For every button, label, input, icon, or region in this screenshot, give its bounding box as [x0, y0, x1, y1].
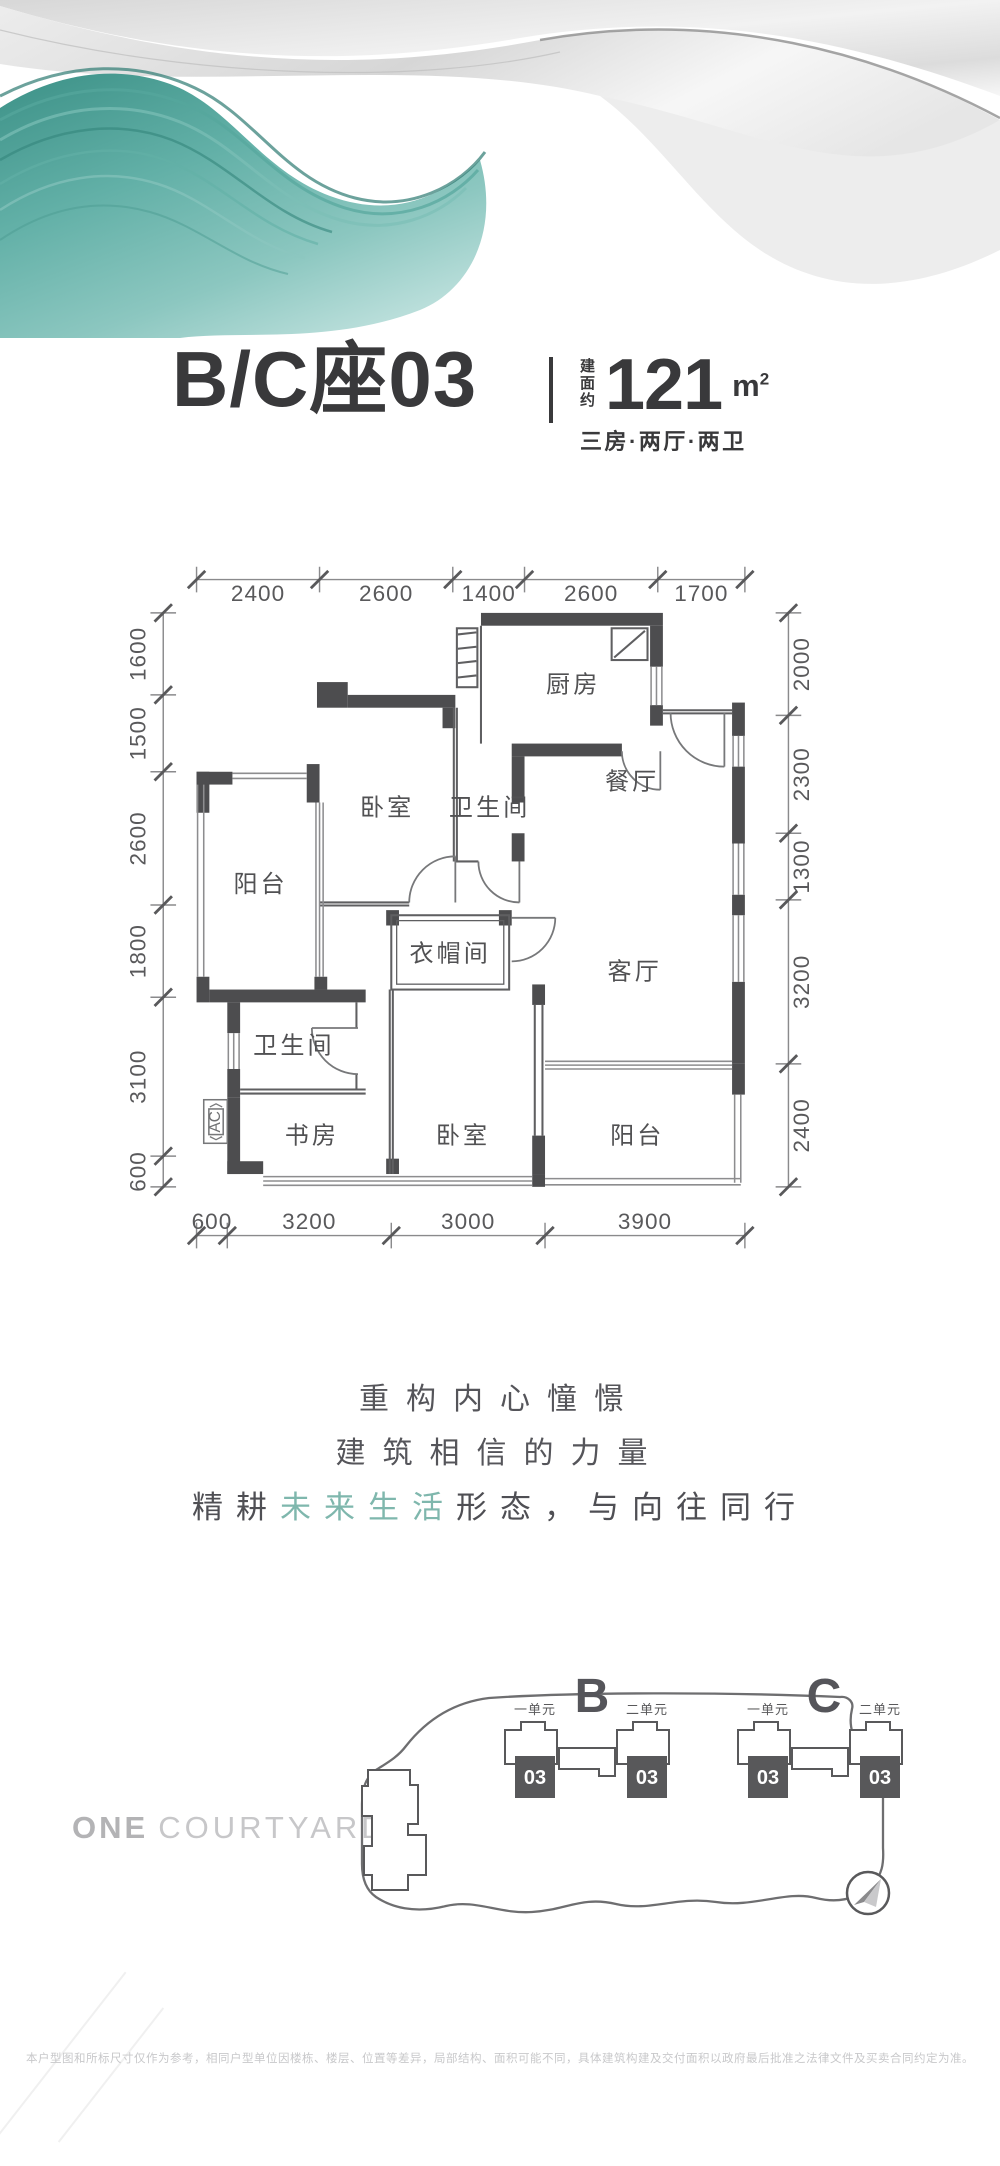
dim-right-4: 2400	[789, 1098, 814, 1152]
dim-right-0: 2000	[789, 637, 814, 691]
unit-no-b1: 03	[524, 1767, 546, 1789]
slogan-line-3: 精耕未来生活形态，与向往同行	[0, 1482, 1000, 1527]
disclaimer-text: 本户型图和所标尺寸仅作为参考，相同户型单位因楼栋、楼层、位置等差异，局部结构、面…	[0, 2050, 1000, 2066]
unit-no-c2: 03	[869, 1767, 891, 1789]
dim-right-3: 3200	[789, 955, 814, 1009]
watermark-line	[58, 2007, 164, 2142]
teal-paint-wave	[0, 69, 486, 338]
floorplan-windows	[198, 667, 744, 1186]
area-block: 建面约 121 m2	[580, 352, 769, 418]
area-unit: m2	[732, 368, 769, 404]
dim-top-2: 1400	[462, 581, 516, 606]
ac-unit: AC	[204, 1085, 228, 1143]
unit-label-b2: 二单元	[626, 1702, 668, 1717]
dim-bottom-2: 3000	[441, 1209, 495, 1234]
siteplan-drawing: B C 03 03 一单元 二单元 03 03 一单元 二单元	[296, 1676, 952, 1932]
area-prefix: 建面约	[580, 358, 597, 409]
dim-top-3: 2600	[564, 581, 618, 606]
dim-bottom-0: 600	[192, 1209, 233, 1234]
slogan-3-highlight: 未来生活	[280, 1490, 456, 1525]
room-study: 书房	[285, 1122, 339, 1149]
dim-bottom-3: 3900	[618, 1209, 672, 1234]
room-balcony-left: 阳台	[233, 871, 287, 898]
unit-no-b2: 03	[636, 1767, 658, 1789]
dim-left-0: 1600	[125, 627, 150, 681]
room-labels: 厨房 餐厅 卧室 卫生间 阳台 卫生间 衣帽间 客厅 书房 卧室 阳台	[233, 671, 664, 1149]
page-title: B/C座03	[172, 340, 477, 418]
unit-label-c1: 一单元	[747, 1702, 789, 1717]
unit-label-b1: 一单元	[514, 1702, 556, 1717]
area-value: 121	[605, 352, 722, 418]
slogan-3-post: 形态，与向往同行	[456, 1490, 808, 1525]
dim-right-2: 1300	[789, 839, 814, 893]
ac-label: AC	[207, 1111, 224, 1132]
room-cloakroom: 衣帽间	[409, 940, 490, 967]
room-living: 客厅	[608, 958, 662, 985]
room-balcony-bottom: 阳台	[610, 1122, 664, 1149]
floorplan-drawing: AC 厨房 餐厅 卧室 卫生间 阳台 卫生间 衣帽间 客厅 书房 卧室 阳台 2…	[112, 536, 832, 1274]
unit-label-c2: 二单元	[859, 1702, 901, 1717]
room-kitchen: 厨房	[546, 671, 600, 698]
dim-left-5: 600	[125, 1151, 150, 1192]
slogan-3-pre: 精耕	[192, 1490, 280, 1525]
dim-top-0: 2400	[231, 581, 285, 606]
room-bedroom-top: 卧室	[360, 794, 414, 821]
unit-no-c1: 03	[757, 1767, 779, 1789]
tower-a-footprint	[362, 1770, 426, 1890]
room-bedroom-bottom: 卧室	[436, 1122, 490, 1149]
dim-top-1: 2600	[359, 581, 413, 606]
slogan-line-2: 建筑相信的力量	[0, 1428, 1000, 1472]
layout-desc: 三房·两厅·两卫	[580, 424, 747, 456]
dim-bottom-1: 3200	[282, 1209, 336, 1234]
dim-left-4: 3100	[125, 1050, 150, 1104]
site-boundary	[362, 1693, 883, 1912]
dim-left-3: 1800	[125, 924, 150, 978]
slogan-line-1: 重构内心憧憬	[0, 1374, 1000, 1418]
room-dining: 餐厅	[605, 769, 659, 796]
room-bath-left: 卫生间	[253, 1033, 334, 1060]
area-unit-base: m	[732, 368, 760, 403]
tower-b-letter: B	[575, 1676, 610, 1723]
compass-icon	[847, 1872, 889, 1914]
area-unit-sup: 2	[760, 370, 769, 389]
tower-c-letter: C	[807, 1676, 842, 1723]
header-wave-art	[0, 0, 1000, 338]
title-divider	[549, 357, 553, 423]
dim-left-1: 1500	[125, 706, 150, 760]
dim-left-2: 2600	[125, 811, 150, 865]
room-bath-top: 卫生间	[449, 794, 530, 821]
dim-right-1: 2300	[789, 747, 814, 801]
dim-top-4: 1700	[674, 581, 728, 606]
logo-one: ONE	[72, 1810, 148, 1845]
